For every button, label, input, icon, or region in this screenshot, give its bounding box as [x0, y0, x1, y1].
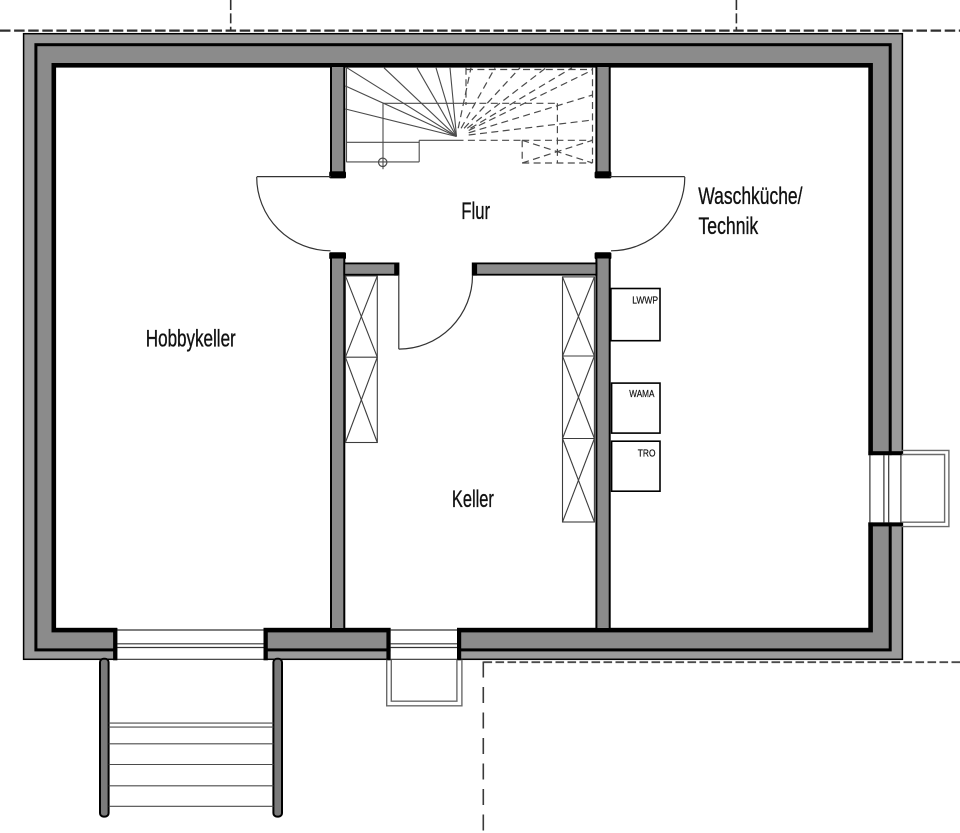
svg-text:Hobbykeller: Hobbykeller — [146, 326, 236, 353]
svg-text:Flur: Flur — [461, 198, 490, 225]
svg-text:Keller: Keller — [452, 486, 494, 513]
svg-text:LWWP: LWWP — [632, 294, 658, 306]
svg-text:Technik: Technik — [699, 214, 759, 240]
svg-text:Waschküche/: Waschküche/ — [698, 184, 802, 210]
svg-text:TRO: TRO — [638, 448, 656, 459]
svg-text:WAMA: WAMA — [629, 388, 655, 399]
